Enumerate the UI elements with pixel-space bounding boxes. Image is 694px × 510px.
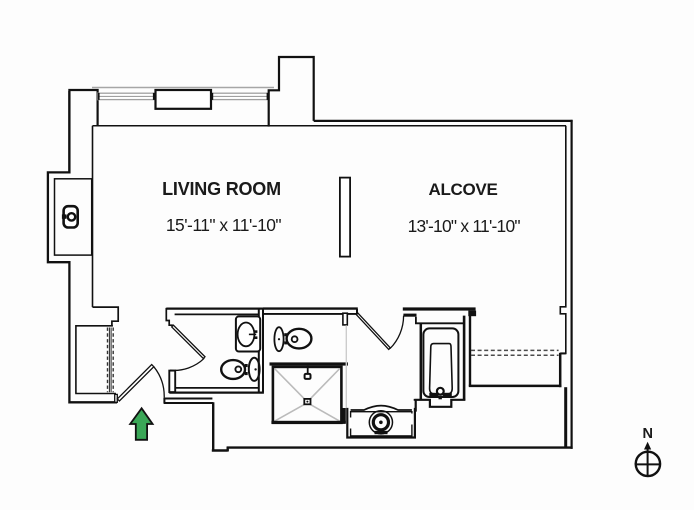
- svg-text:N: N: [643, 426, 653, 442]
- svg-text:13'-10" x 11'-10": 13'-10" x 11'-10": [408, 216, 521, 236]
- svg-text:15'-11" x 11'-10": 15'-11" x 11'-10": [166, 215, 282, 235]
- svg-text:ALCOVE: ALCOVE: [428, 180, 497, 199]
- svg-text:LIVING ROOM: LIVING ROOM: [162, 179, 281, 199]
